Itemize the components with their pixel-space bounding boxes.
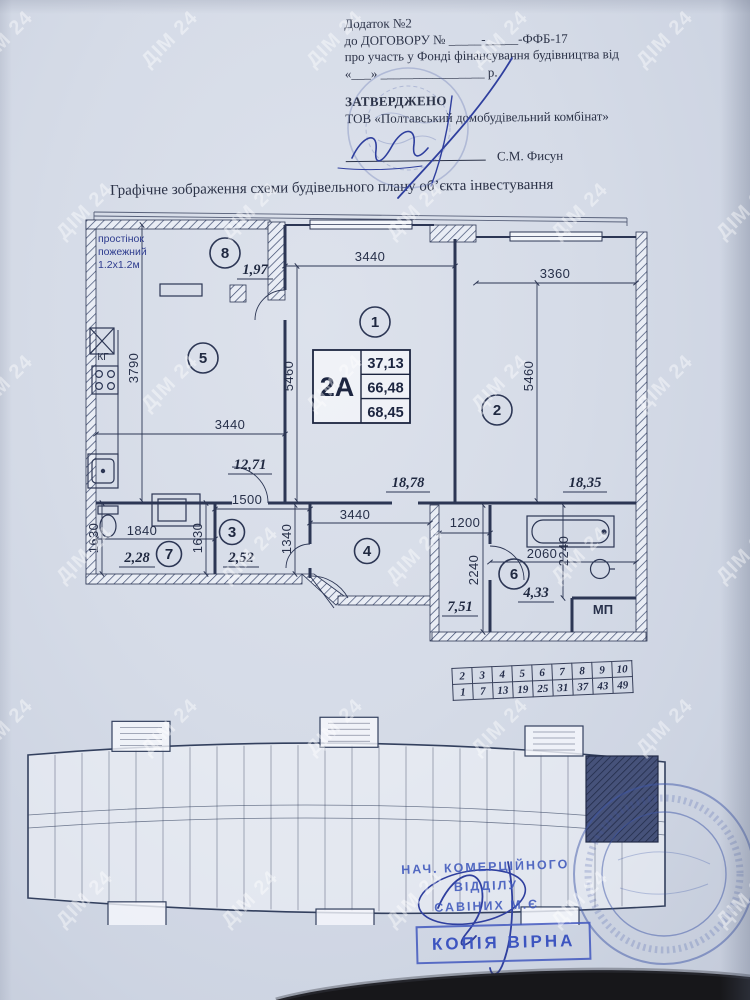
photo-background-bottom (276, 970, 750, 1000)
dept-stamp: НАЧ. КОМЕРЦІЙНОГО ВІДДІЛУ САВІНИХ М.Є (395, 855, 577, 919)
building-overview-svg (20, 710, 732, 925)
room-number-2: 2 (493, 402, 501, 419)
signature-row: С.М. Фисун (346, 145, 746, 167)
page-edge-left (0, 0, 12, 1000)
dim-room1-width-top: 3440 (355, 249, 386, 264)
floor-cell: 9 (592, 661, 613, 678)
dim-room2-height: 5460 (521, 361, 536, 392)
dim-bath-height-1: 2240 (466, 555, 481, 586)
scanned-page: ДІМ 24ДІМ 24ДІМ 24ДІМ 24ДІМ 24ДІМ 24ДІМ … (0, 0, 750, 1000)
floor-cell: 37 (572, 678, 593, 695)
fire-note: простінок пожежний 1.2х1.2м (98, 233, 147, 271)
watermark-text: ДІМ 24 (712, 179, 750, 245)
room-number-4: 4 (363, 543, 372, 560)
dim-hall-height: 1340 (279, 524, 294, 555)
dim-bath-width-1: 1200 (450, 515, 481, 530)
watermark-text: ДІМ 24 (712, 523, 750, 589)
apartment-area-total: 68,45 (367, 405, 403, 421)
page-edge-top (0, 0, 750, 14)
company-name: ТОВ «Полтавський домобудівельний комбіна… (345, 106, 745, 127)
apartment-area-mid: 66,48 (367, 381, 403, 397)
room-area-1: 18,78 (392, 475, 425, 491)
floor-cell: 49 (612, 677, 633, 694)
floor-cell: 31 (552, 679, 573, 696)
floor-plan: 3440 3360 5460 5460 3790 3440 1630 1840 … (82, 208, 652, 648)
copy-stamp: КОПІЯ ВІРНА (416, 922, 592, 965)
dim-hall-width: 3440 (340, 507, 371, 522)
washer-icon (152, 494, 200, 526)
toilet-icon (98, 506, 118, 537)
floor-cell: 13 (493, 682, 514, 699)
dim-bath-width-2: 2060 (527, 546, 558, 561)
dim-room1-height: 5460 (281, 361, 296, 392)
dim-bath-height-2: 2240 (556, 536, 571, 567)
room-number-7: 7 (165, 546, 173, 563)
floor-cell: 10 (612, 661, 633, 678)
document-header: Додаток №2 до ДОГОВОРУ № _____-_____-ФФБ… (344, 12, 746, 167)
dim-kitchen-width: 3440 (215, 417, 246, 432)
apartment-label: 2А (320, 372, 355, 402)
room-area-2: 18,35 (569, 475, 602, 491)
dim-wc-width: 1840 (127, 523, 158, 538)
dim-wc-height: 1630 (86, 523, 101, 554)
room-area-8: 1,97 (242, 262, 268, 278)
kg-label: КГ (97, 352, 109, 363)
room-number-8: 8 (221, 245, 229, 262)
floor-cell: 4 (492, 666, 513, 683)
room-area-6: 4,33 (522, 585, 548, 601)
floor-cell: 25 (533, 680, 554, 697)
signature-line (346, 148, 486, 162)
watermark-text: ДІМ 24 (0, 351, 38, 417)
fire-note-line2: пожежний (98, 246, 147, 258)
apartment-table: 2А 37,13 66,48 68,45 (313, 350, 410, 423)
room-number-3: 3 (228, 524, 236, 541)
wardrobe-icon (160, 284, 202, 296)
room-number-1: 1 (371, 314, 379, 331)
floor-cell: 1 (453, 684, 474, 701)
signer-name: С.М. Фисун (497, 148, 563, 164)
date-line: «___» ________________ р. (345, 61, 745, 82)
paper-bottom-shadow (276, 970, 750, 1000)
floor-plan-svg: 3440 3360 5460 5460 3790 3440 1630 1840 … (82, 208, 652, 648)
floor-cell: 7 (552, 663, 573, 680)
floor-cell: 3 (472, 667, 493, 684)
room-number-6: 6 (510, 566, 518, 583)
dim-room3-width: 1500 (232, 492, 263, 507)
page-title: Графічне зображення схеми будівельного п… (110, 175, 670, 200)
watermark-text: ДІМ 24 (137, 7, 203, 73)
dim-room3-height: 1630 (190, 523, 205, 554)
fire-note-line3: 1.2х1.2м (98, 259, 140, 271)
room-area-4: 7,51 (447, 599, 472, 615)
interior-walls (96, 225, 636, 632)
floors-table: 2 3 4 5 6 7 8 9 10 1 7 13 19 25 31 37 43… (451, 660, 633, 701)
apartment-location-highlight (586, 756, 658, 842)
floor-cell: 8 (572, 662, 593, 679)
floor-cell: 2 (452, 668, 473, 685)
floor-cell: 19 (513, 681, 534, 698)
fixtures (88, 284, 615, 579)
mp-label: МП (593, 602, 613, 617)
watermark-text: ДІМ 24 (0, 7, 38, 73)
floor-cell: 5 (512, 665, 533, 682)
room-number-5: 5 (199, 350, 207, 367)
dim-kitchen-height: 3790 (126, 353, 141, 384)
dim-room2-width-top: 3360 (540, 266, 571, 281)
dimension-lines (96, 225, 636, 632)
floor-cell: 43 (592, 677, 613, 694)
floor-cell: 7 (473, 683, 494, 700)
room-area-5: 12,71 (234, 457, 267, 473)
room-area-7: 2,28 (123, 550, 150, 566)
building-overview (20, 710, 732, 925)
fire-note-line1: простінок (98, 233, 144, 245)
room-area-3: 2,52 (227, 550, 253, 566)
apartment-area-living: 37,13 (367, 356, 403, 372)
floor-cell: 6 (532, 664, 553, 681)
